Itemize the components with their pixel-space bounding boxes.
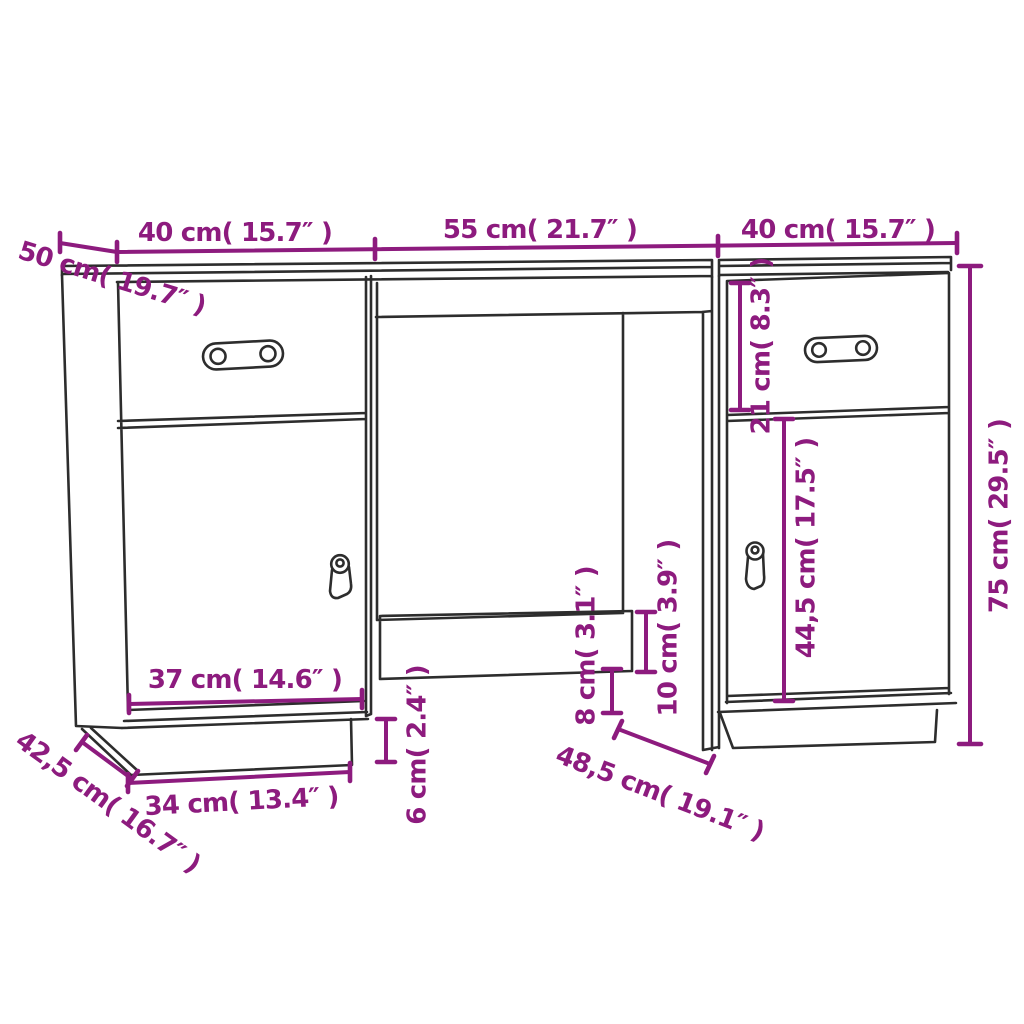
- right-drawer-handle-screw-right: [856, 341, 870, 355]
- left-cabinet-side-panel: [62, 275, 122, 728]
- label-total-height: 75 cm( 29.5″ ): [985, 419, 1015, 613]
- right-cabinet-plinth: [720, 710, 937, 748]
- right-door-handle-hole: [752, 547, 759, 554]
- label-top-width-right: 40 cm( 15.7″ ): [741, 215, 935, 245]
- label-drawer-height: 21 cm( 8.3″ ): [747, 258, 777, 435]
- left-door-handle-hole: [336, 559, 343, 566]
- label-kneespace-depth: 48,5 cm( 19.1″ ): [551, 740, 768, 847]
- label-plinth-width: 34 cm( 13.4″ ): [144, 782, 339, 822]
- right-drawer-handle: [805, 335, 878, 362]
- label-top-width-left: 40 cm( 15.7″ ): [138, 218, 332, 248]
- label-rail-clearance: 8 cm( 3.1″ ): [572, 566, 602, 726]
- dim-kneespace-depth-line: [618, 729, 710, 764]
- diagram-canvas: 40 cm( 15.7″ ) 55 cm( 21.7″ ) 40 cm( 15.…: [0, 0, 1024, 1024]
- left-drawer-handle-screw-left: [210, 348, 226, 364]
- desk-dimension-diagram: 40 cm( 15.7″ ) 55 cm( 21.7″ ) 40 cm( 15.…: [0, 0, 1024, 1024]
- left-door-handle: [330, 555, 351, 598]
- left-drawer-handle: [202, 340, 283, 370]
- label-door-height: 44,5 cm( 17.5″ ): [792, 438, 822, 659]
- right-door-handle: [746, 543, 764, 590]
- label-desktop-depth: 50 cm( 19.7″ ): [15, 236, 209, 321]
- label-top-width-center: 55 cm( 21.7″ ): [443, 215, 637, 245]
- right-drawer-handle-screw-left: [812, 343, 826, 357]
- furniture-outline: [62, 257, 956, 775]
- label-plinth-height: 6 cm( 2.4″ ): [403, 665, 433, 825]
- label-door-width: 37 cm( 14.6″ ): [148, 665, 342, 695]
- left-drawer-handle-screw-right: [260, 346, 276, 362]
- label-rail-height: 10 cm( 3.9″ ): [654, 540, 684, 717]
